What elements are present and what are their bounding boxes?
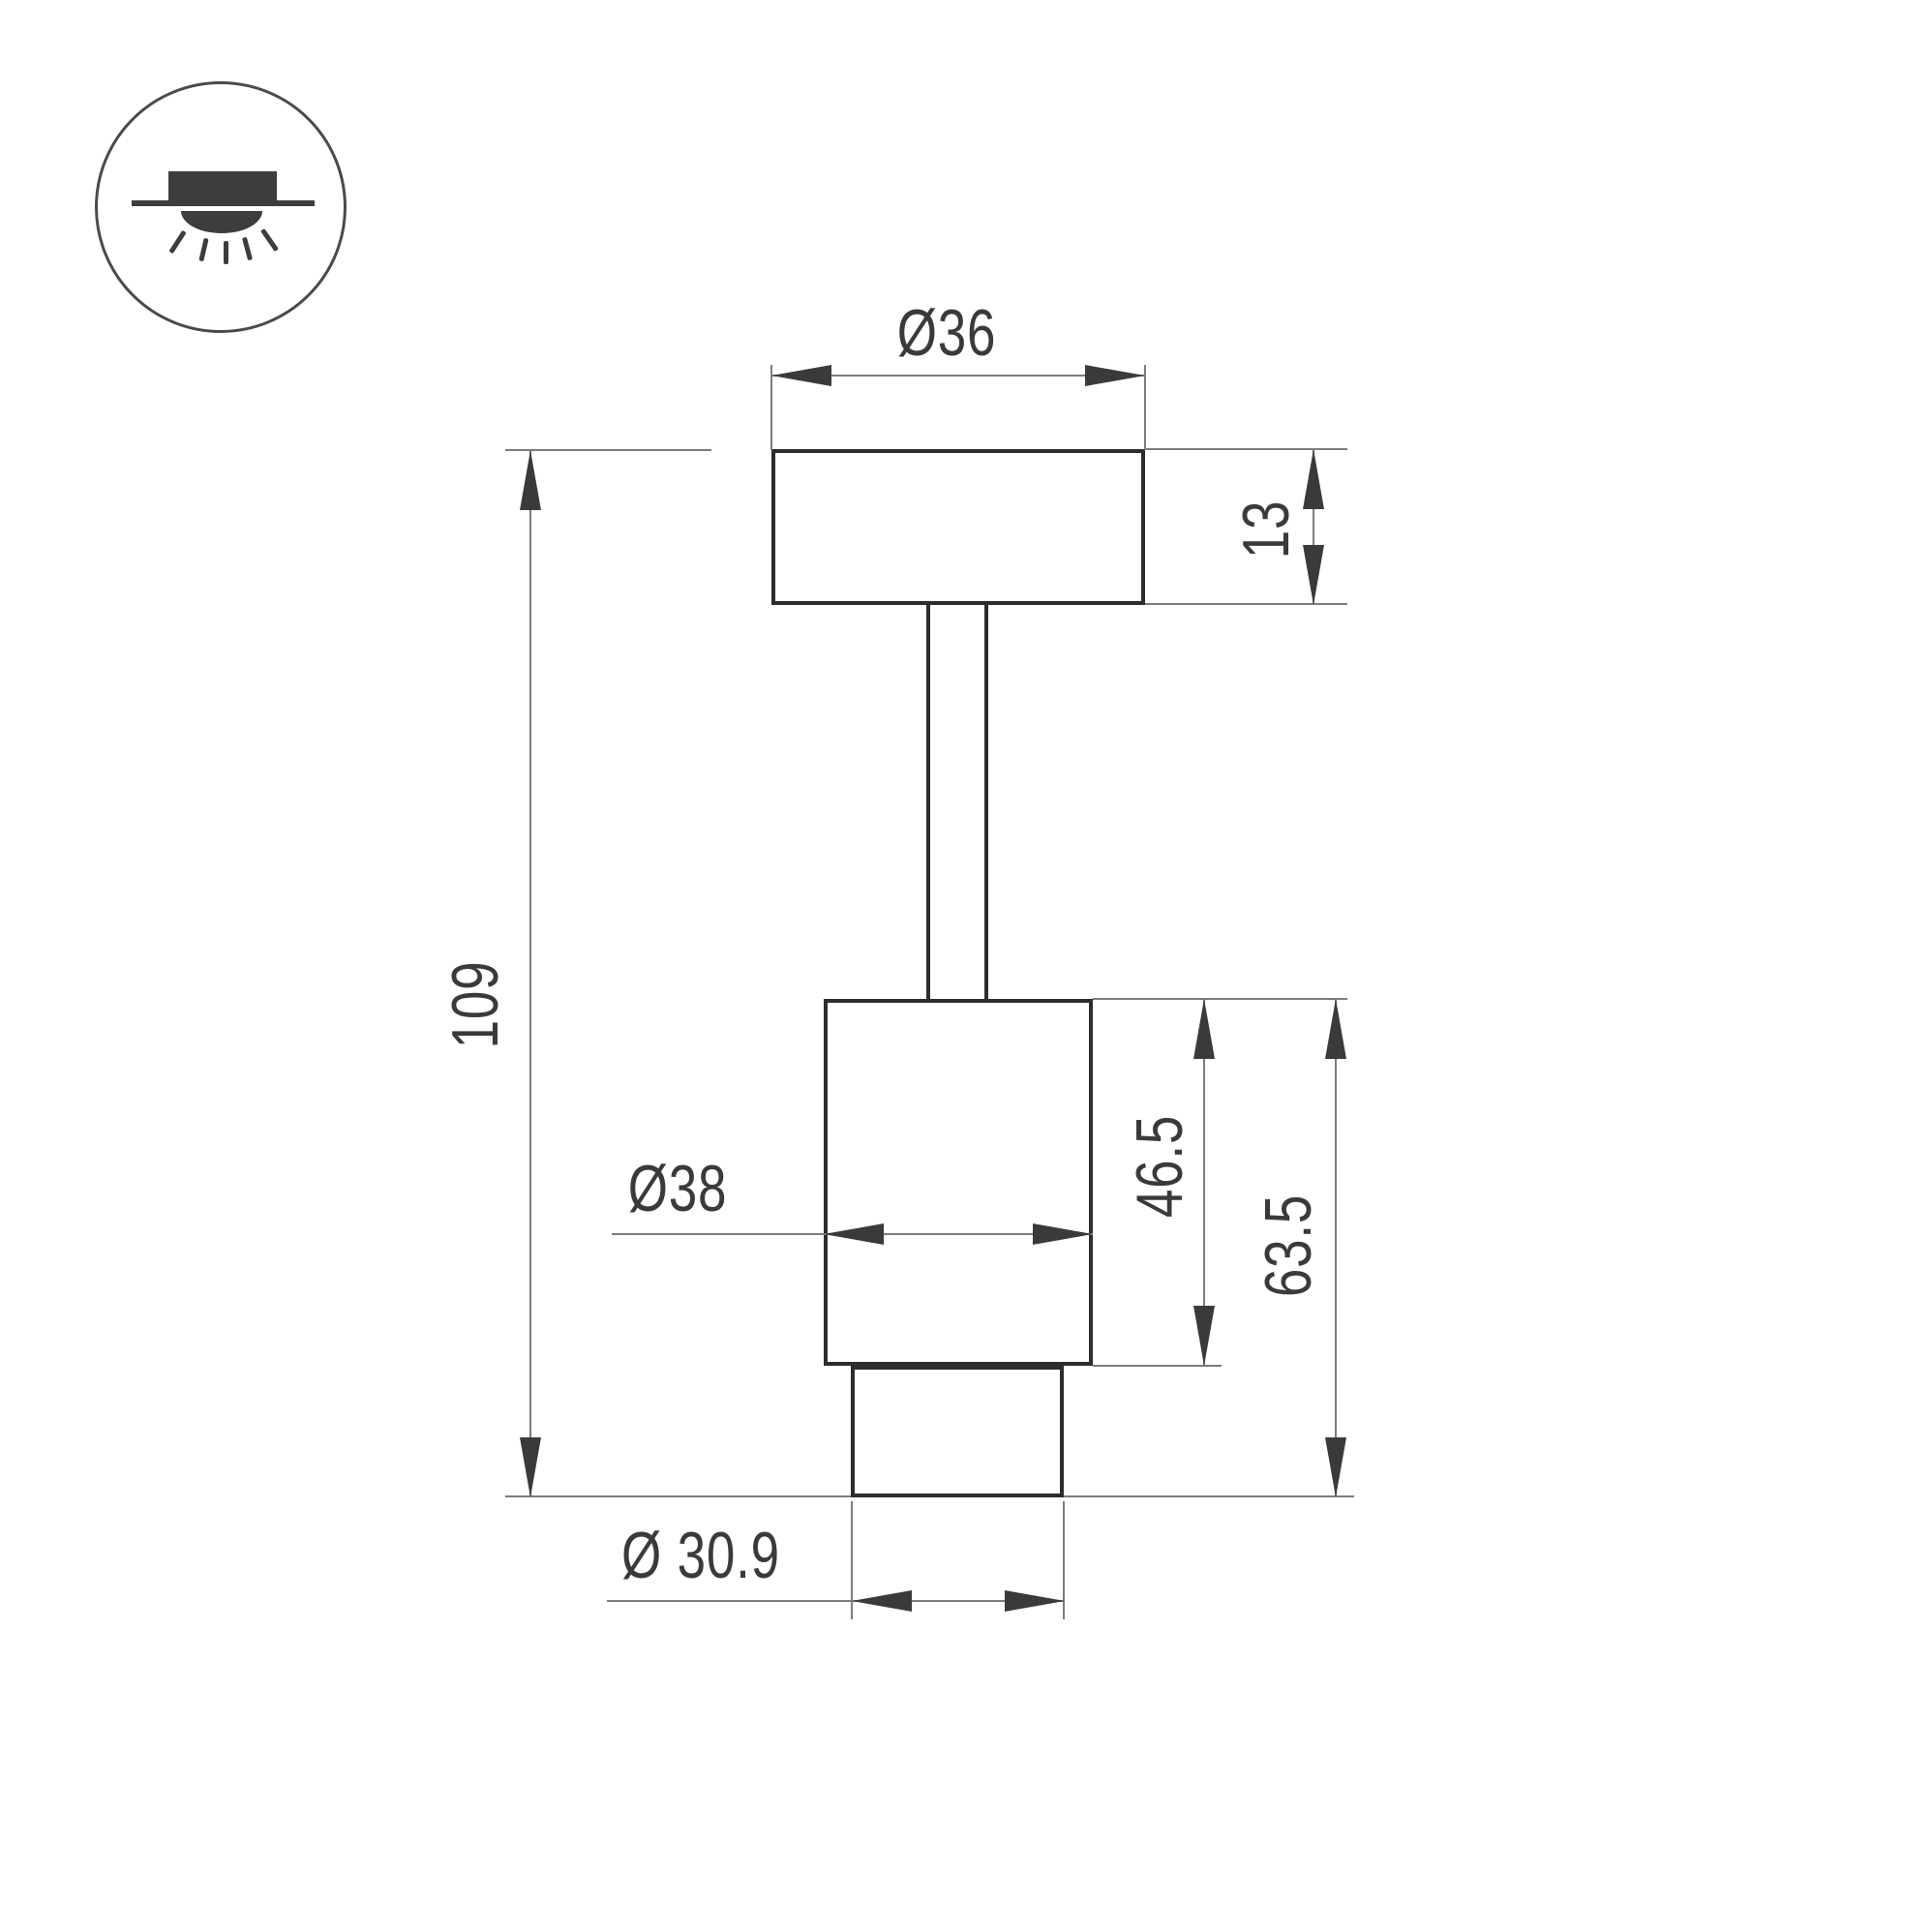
bottom-cylinder: [851, 1366, 1064, 1497]
arrowhead: [1303, 545, 1324, 605]
stem: [926, 603, 988, 1003]
arrowhead: [1033, 1223, 1093, 1245]
arrowhead: [1193, 1306, 1215, 1366]
dimension-drawing: Ø36 13 109 Ø38 46.5 63.5: [0, 0, 1932, 1932]
dim-label-plate-height: 13: [1233, 500, 1299, 559]
dim-label-overall-height: 109: [442, 961, 508, 1049]
dim-label-bottom-diameter: Ø 30.9: [621, 1523, 780, 1588]
arrowhead: [1193, 999, 1215, 1059]
ceiling-canopy-icon: [168, 171, 277, 200]
arrowhead: [852, 1590, 912, 1612]
dimension-line: [607, 1600, 1065, 1602]
dim-label-lower-section-height: 63.5: [1255, 1194, 1321, 1297]
arrowhead: [520, 1437, 541, 1497]
arrowhead: [1325, 999, 1346, 1059]
dim-label-body-diameter: Ø38: [628, 1156, 728, 1222]
arrowhead: [1303, 449, 1324, 509]
lamp-body: [824, 999, 1093, 1366]
arrowhead: [1085, 365, 1145, 386]
dimension-line: [529, 450, 531, 1497]
ceiling-line-icon: [132, 200, 315, 206]
dim-label-body-height: 46.5: [1127, 1115, 1192, 1218]
top-plate: [771, 449, 1145, 605]
icon-circle: [95, 81, 347, 333]
dim-label-plate-diameter: Ø36: [897, 300, 997, 366]
arrowhead: [520, 450, 541, 510]
arrowhead: [1325, 1437, 1346, 1497]
arrowhead: [771, 365, 831, 386]
extension-line: [1093, 998, 1347, 1000]
dimension-line: [1335, 999, 1337, 1497]
arrowhead: [824, 1223, 884, 1245]
arrowhead: [1005, 1590, 1065, 1612]
light-ray-icon: [224, 241, 228, 264]
